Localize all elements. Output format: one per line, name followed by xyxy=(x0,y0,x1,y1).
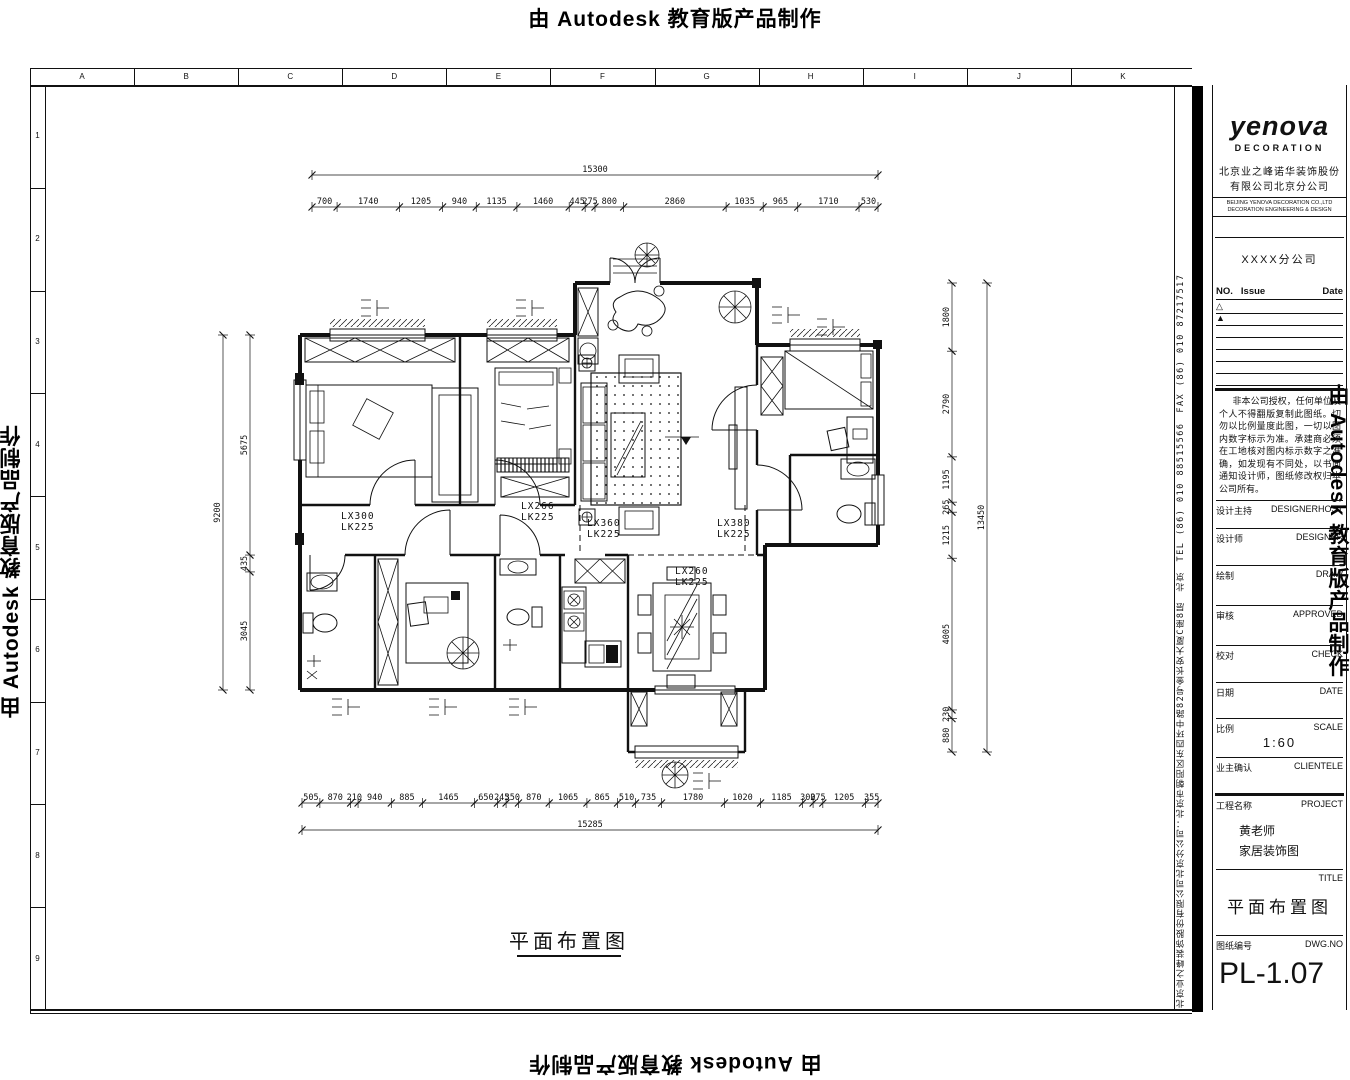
frame-line xyxy=(30,68,31,1013)
svg-text:505: 505 xyxy=(303,793,318,803)
svg-text:LX266: LX266 xyxy=(521,501,555,512)
tv-bench xyxy=(497,458,569,472)
double-bed xyxy=(306,385,432,477)
floor-drain xyxy=(503,639,517,651)
rev-date: Date xyxy=(1322,286,1343,297)
autodesk-watermark-left: 由 Autodesk 教育版产品制作 xyxy=(0,398,27,718)
beam-labels: LX300LK225LX266LK225LX360LK225LX380LK225… xyxy=(341,501,751,588)
revision-header: NO. Issue Date xyxy=(1216,283,1343,300)
svg-text:LK225: LK225 xyxy=(587,529,621,540)
toilet xyxy=(837,505,861,523)
floor-drain xyxy=(307,655,321,679)
rev-issue: Issue xyxy=(1241,286,1265,297)
toilet xyxy=(507,609,529,625)
svg-text:5675: 5675 xyxy=(240,435,250,455)
toilet-tank xyxy=(532,607,542,627)
study-room xyxy=(378,559,479,685)
field-designer: 设计师DESIGNER xyxy=(1216,528,1343,545)
plant xyxy=(719,291,751,323)
pillar xyxy=(721,692,737,726)
autodesk-watermark-top: 由 Autodesk 教育版产品制作 xyxy=(0,3,1350,33)
plan-caption: 平面布置图 xyxy=(503,925,635,954)
svg-text:15300: 15300 xyxy=(582,165,608,175)
chair xyxy=(827,427,849,450)
svg-text:1065: 1065 xyxy=(558,793,578,803)
balcony xyxy=(631,692,737,788)
frame-line xyxy=(30,68,1192,69)
svg-text:LX300: LX300 xyxy=(341,511,375,522)
bedroom-right xyxy=(761,351,873,463)
svg-text:880: 880 xyxy=(942,728,952,743)
entry-hall xyxy=(578,243,751,364)
svg-text:4005: 4005 xyxy=(942,624,952,644)
floor-plan-drawing: 1530070017401205940113514604452758002860… xyxy=(35,85,1175,1010)
svg-text:LX360: LX360 xyxy=(587,518,621,529)
rev-no: NO. xyxy=(1216,286,1233,297)
svg-text:1710: 1710 xyxy=(818,197,838,207)
svg-text:865: 865 xyxy=(595,793,610,803)
bathroom-second xyxy=(500,559,542,651)
field-date: 日期DATE xyxy=(1216,682,1343,699)
columns xyxy=(295,278,882,545)
field-approved: 审核APPROVED xyxy=(1216,605,1343,622)
field-project: 工程名称PROJECT xyxy=(1216,796,1343,812)
bathroom-right xyxy=(837,459,875,525)
logo: yenova xyxy=(1213,111,1346,142)
svg-text:LX260: LX260 xyxy=(675,566,709,577)
svg-text:1780: 1780 xyxy=(683,793,703,803)
column-letter: K xyxy=(1071,72,1175,81)
column-letter: H xyxy=(759,72,863,81)
bed xyxy=(495,368,557,464)
toilet xyxy=(313,614,337,632)
column-letter: J xyxy=(967,72,1071,81)
field-clientele: 业主确认CLIENTELE xyxy=(1216,757,1343,774)
caption-underline xyxy=(517,955,621,957)
entry-steps xyxy=(613,259,657,273)
svg-text:2860: 2860 xyxy=(665,197,685,207)
living-room xyxy=(579,355,747,535)
field-check: 校对CHECK xyxy=(1216,645,1343,662)
toilet-tank xyxy=(303,613,313,633)
svg-text:1460: 1460 xyxy=(533,197,553,207)
svg-text:LK225: LK225 xyxy=(717,529,751,540)
column-letter: F xyxy=(550,72,654,81)
company-en-line2: DECORATION ENGINEERING & DESIGN xyxy=(1213,207,1346,214)
field-dwgno: 图纸编号DWG.NO xyxy=(1216,935,1343,952)
tv xyxy=(729,425,737,469)
svg-text:LX380: LX380 xyxy=(717,518,751,529)
chair xyxy=(713,633,726,653)
company-en-line1: BEIJING YENOVA DECORATION CO.,LTD xyxy=(1213,200,1346,207)
pillar xyxy=(631,692,647,726)
svg-text:965: 965 xyxy=(773,197,788,207)
nightstand xyxy=(559,368,571,383)
svg-text:230: 230 xyxy=(942,707,952,722)
column-letter: B xyxy=(134,72,238,81)
drawing-number: PL-1.07 xyxy=(1219,957,1324,991)
autodesk-watermark-bottom: 由 Autodesk 教育版产品制作 xyxy=(528,1050,821,1080)
svg-text:1205: 1205 xyxy=(834,793,854,803)
svg-text:650: 650 xyxy=(478,793,493,803)
company-name-cn: 北京业之峰诺华装饰股份 xyxy=(1213,163,1346,178)
kitchen xyxy=(562,559,625,667)
svg-text:800: 800 xyxy=(602,197,617,207)
column-letter: G xyxy=(655,72,759,81)
counter xyxy=(562,587,586,663)
svg-text:940: 940 xyxy=(367,793,382,803)
svg-text:LK225: LK225 xyxy=(675,577,709,588)
cabinets xyxy=(575,559,625,583)
vanity xyxy=(500,559,536,575)
column-letter: D xyxy=(342,72,446,81)
company-address-strip: 北京业之峰装饰股份有限公司北京分公司：北京市朝阳区东四环中路82号金长安大厦C座… xyxy=(1175,90,1190,1008)
wardrobe xyxy=(487,338,569,362)
svg-text:1020: 1020 xyxy=(732,793,752,803)
svg-text:275: 275 xyxy=(810,793,825,803)
bathroom-left xyxy=(303,573,337,679)
field-scale: 比例SCALE xyxy=(1216,718,1343,735)
svg-text:LK225: LK225 xyxy=(521,512,555,523)
plant-below xyxy=(662,762,688,788)
plant-outside xyxy=(635,243,659,267)
svg-text:275: 275 xyxy=(582,197,597,207)
logo-subtitle: DECORATION xyxy=(1213,143,1346,153)
sheet-title: 平面布置图 xyxy=(1213,893,1346,918)
branch-name: XXXX分公司 xyxy=(1213,251,1346,267)
field-title: TITLE xyxy=(1216,869,1343,883)
svg-text:15285: 15285 xyxy=(577,820,603,830)
chair xyxy=(638,633,651,653)
company-name-en: BEIJING YENOVA DECORATION CO.,LTD DECORA… xyxy=(1213,197,1346,217)
bedroom-master xyxy=(305,338,478,502)
svg-text:1800: 1800 xyxy=(942,307,952,327)
svg-text:1465: 1465 xyxy=(438,793,458,803)
centerpiece xyxy=(670,615,694,639)
svg-text:2790: 2790 xyxy=(942,394,952,414)
wardrobe xyxy=(305,338,455,362)
svg-text:355: 355 xyxy=(864,793,879,803)
copyright-notes: 非本公司授权，任何单位及个人不得翻版复制此图纸。切勿以比例量度此图，一切以图内数… xyxy=(1219,395,1341,495)
svg-text:1195: 1195 xyxy=(942,469,952,489)
closet xyxy=(378,559,398,685)
svg-text:1205: 1205 xyxy=(411,197,431,207)
svg-text:530: 530 xyxy=(861,197,876,207)
wardrobe xyxy=(761,357,783,415)
field-designerhost: 设计主持DESIGNERHOST xyxy=(1216,500,1343,517)
svg-text:265: 265 xyxy=(942,499,952,514)
svg-text:350: 350 xyxy=(505,793,520,803)
svg-text:210: 210 xyxy=(347,793,362,803)
svg-text:1135: 1135 xyxy=(486,197,506,207)
title-block: yenova DECORATION 北京业之峰诺华装饰股份 有限公司北京分公司 … xyxy=(1212,85,1347,1010)
svg-text:3045: 3045 xyxy=(240,621,250,641)
company-name-cn2: 有限公司北京分公司 xyxy=(1213,178,1346,193)
svg-text:870: 870 xyxy=(328,793,343,803)
chair xyxy=(408,602,429,626)
plant xyxy=(447,637,479,669)
column-letter: I xyxy=(863,72,967,81)
svg-text:13450: 13450 xyxy=(977,505,987,531)
svg-text:700: 700 xyxy=(317,197,332,207)
column-letter: E xyxy=(446,72,550,81)
svg-text:1185: 1185 xyxy=(771,793,791,803)
svg-text:940: 940 xyxy=(452,197,467,207)
bedroom-second xyxy=(487,338,571,497)
svg-text:1740: 1740 xyxy=(358,197,378,207)
column-letter: A xyxy=(30,72,134,81)
svg-text:9200: 9200 xyxy=(213,502,223,522)
svg-text:510: 510 xyxy=(619,793,634,803)
project-name-line2: 家居装饰图 xyxy=(1239,842,1299,859)
column-letter: C xyxy=(238,72,342,81)
frame-line xyxy=(30,1013,1192,1014)
svg-text:735: 735 xyxy=(641,793,656,803)
svg-text:1215: 1215 xyxy=(942,525,952,545)
svg-text:885: 885 xyxy=(399,793,414,803)
project-name-line1: 黄老师 xyxy=(1239,822,1275,839)
svg-text:435: 435 xyxy=(240,556,250,571)
binding-bar xyxy=(1192,86,1203,1012)
scale-value: 1:60 xyxy=(1213,735,1346,750)
svg-text:1035: 1035 xyxy=(734,197,754,207)
chair xyxy=(638,595,651,615)
svg-text:870: 870 xyxy=(526,793,541,803)
svg-text:LK225: LK225 xyxy=(341,522,375,533)
field-draw: 绘制DRAW xyxy=(1216,565,1343,582)
revision-row xyxy=(1216,373,1343,386)
chair xyxy=(713,595,726,615)
pebble-decor xyxy=(613,291,665,331)
